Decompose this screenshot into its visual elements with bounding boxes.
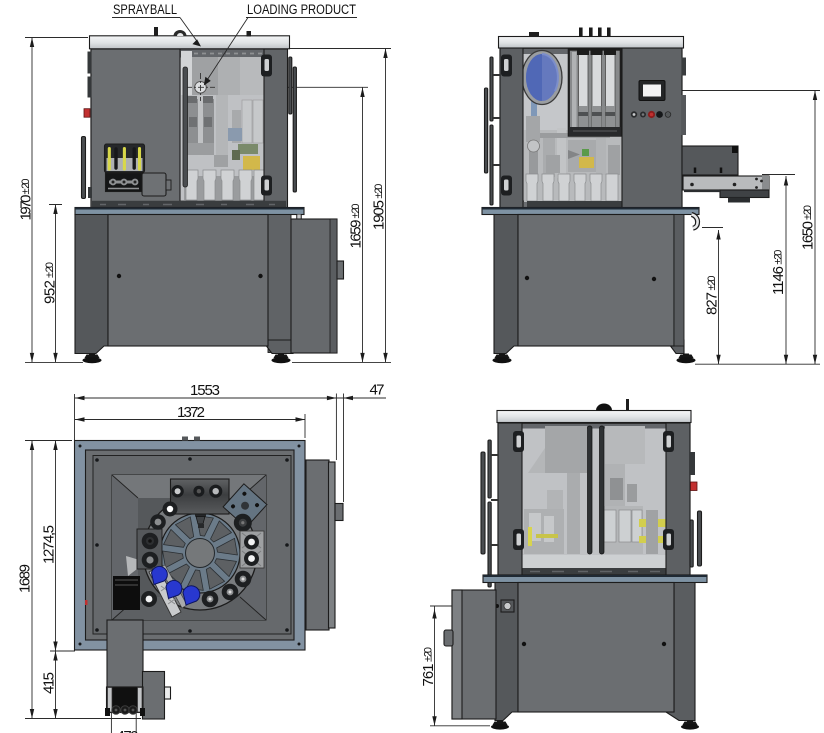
svg-text:1689: 1689 xyxy=(17,564,34,593)
svg-text:952± 20: 952± 20 xyxy=(42,262,59,304)
svg-text:1553: 1553 xyxy=(190,382,220,399)
svg-text:1372: 1372 xyxy=(177,404,205,421)
svg-text:415: 415 xyxy=(41,672,58,694)
svg-text:1146± 20: 1146± 20 xyxy=(770,250,787,295)
svg-text:47: 47 xyxy=(370,382,385,399)
svg-text:1659± 20: 1659± 20 xyxy=(348,203,365,248)
svg-text:1970± 20: 1970± 20 xyxy=(18,178,35,220)
svg-text:761± 20: 761± 20 xyxy=(420,647,437,686)
svg-text:1650± 20: 1650± 20 xyxy=(800,205,817,250)
svg-text:827± 20: 827± 20 xyxy=(704,276,721,315)
svg-text:470: 470 xyxy=(117,728,139,733)
svg-text:LOADING PRODUCT: LOADING PRODUCT xyxy=(247,2,356,17)
svg-text:1905± 20: 1905± 20 xyxy=(371,184,388,230)
svg-text:SPRAYBALL: SPRAYBALL xyxy=(113,2,177,17)
svg-text:1274,5: 1274,5 xyxy=(41,525,58,564)
